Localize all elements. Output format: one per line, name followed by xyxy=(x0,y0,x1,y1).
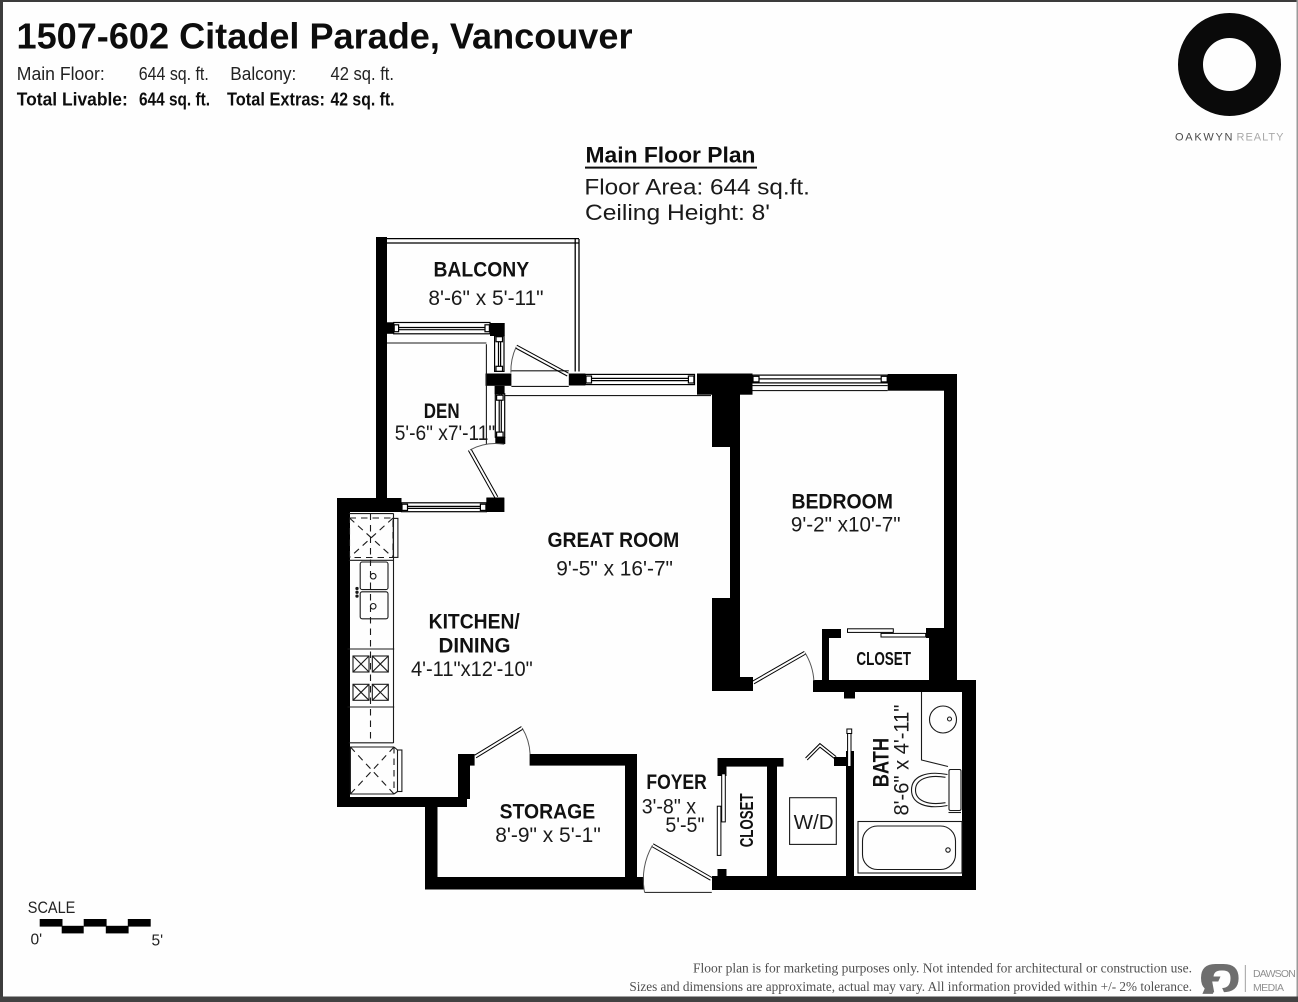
svg-text:CLOSET: CLOSET xyxy=(737,793,757,847)
svg-text:Floor plan is for marketing pu: Floor plan is for marketing purposes onl… xyxy=(693,961,1192,976)
svg-text:BEDROOM: BEDROOM xyxy=(791,490,893,513)
svg-text:5'-6" x7'-11": 5'-6" x7'-11" xyxy=(395,421,496,445)
svg-text:Main Floor:: Main Floor: xyxy=(17,64,105,84)
svg-text:4'-11"x12'-10": 4'-11"x12'-10" xyxy=(411,657,533,681)
svg-text:STORAGE: STORAGE xyxy=(500,800,596,823)
svg-text:Sizes and dimensions are appro: Sizes and dimensions are approximate, ac… xyxy=(629,979,1192,994)
svg-text:DINING: DINING xyxy=(439,635,511,658)
svg-text:DAWSON: DAWSON xyxy=(1253,968,1296,980)
svg-text:FOYER: FOYER xyxy=(646,771,706,794)
svg-text:0': 0' xyxy=(31,932,43,949)
svg-text:CLOSET: CLOSET xyxy=(856,649,911,669)
svg-text:1507-602 Citadel Parade, Vanco: 1507-602 Citadel Parade, Vancouver xyxy=(17,16,633,57)
svg-text:GREAT ROOM: GREAT ROOM xyxy=(548,529,680,552)
svg-text:42 sq. ft.: 42 sq. ft. xyxy=(331,64,395,84)
svg-text:9'-2" x10'-7": 9'-2" x10'-7" xyxy=(791,513,901,537)
svg-text:SCALE: SCALE xyxy=(28,899,76,917)
svg-text:Ceiling Height: 8': Ceiling Height: 8' xyxy=(585,200,770,225)
svg-text:W/D: W/D xyxy=(794,812,834,834)
svg-text:8'-9" x 5'-1": 8'-9" x 5'-1" xyxy=(495,823,601,847)
svg-text:Total Livable:: Total Livable: xyxy=(17,90,128,110)
svg-text:644 sq. ft.: 644 sq. ft. xyxy=(139,64,209,84)
svg-text:Balcony:: Balcony: xyxy=(230,64,296,84)
svg-text:Total Extras:: Total Extras: xyxy=(227,90,325,110)
svg-text:KITCHEN/: KITCHEN/ xyxy=(429,610,520,633)
svg-text:Floor Area: 644 sq.ft.: Floor Area: 644 sq.ft. xyxy=(584,175,810,200)
svg-text:REALTY: REALTY xyxy=(1237,132,1285,144)
svg-text:MEDIA: MEDIA xyxy=(1253,982,1284,994)
svg-text:Main Floor Plan: Main Floor Plan xyxy=(586,143,756,168)
svg-text:644 sq. ft.: 644 sq. ft. xyxy=(139,90,210,110)
svg-text:BALCONY: BALCONY xyxy=(433,259,529,282)
svg-text:42 sq. ft.: 42 sq. ft. xyxy=(331,90,395,110)
svg-text:5'-5": 5'-5" xyxy=(665,813,704,837)
svg-text:9'-5" x 16'-7": 9'-5" x 16'-7" xyxy=(556,556,673,580)
svg-text:8'-6" x 5'-11": 8'-6" x 5'-11" xyxy=(428,286,543,310)
svg-text:8'-6" x 4'-11": 8'-6" x 4'-11" xyxy=(890,705,914,816)
svg-text:5': 5' xyxy=(152,932,164,949)
svg-text:DEN: DEN xyxy=(424,400,460,423)
